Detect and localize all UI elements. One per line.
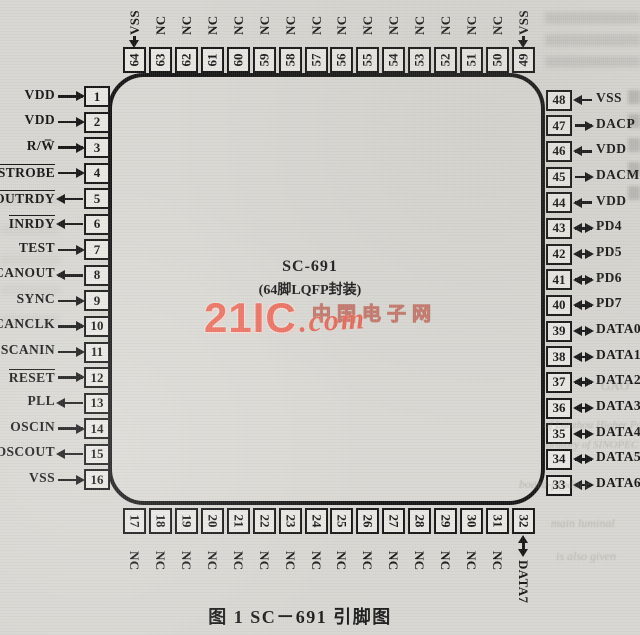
pin-number: 57 — [308, 54, 324, 67]
pin-label-28: NC — [413, 551, 426, 571]
pin-box-18: 18 — [149, 508, 172, 534]
pin-label-42: PD5 — [596, 245, 622, 260]
pin-box-23: 23 — [279, 508, 302, 534]
pin-arrow-44 — [575, 201, 592, 203]
pin-label-51: NC — [465, 15, 478, 35]
pin-box-1: 1 — [84, 86, 110, 107]
pin-label-61: NC — [206, 15, 219, 35]
pin-box-57: 57 — [305, 47, 328, 73]
pin-label-21: NC — [232, 551, 245, 571]
pin-label-text: NC — [205, 15, 220, 35]
pin-label-text: NC — [257, 551, 272, 571]
pin-label-57: NC — [310, 15, 323, 35]
pin-label-text: NC — [283, 15, 298, 35]
chip-package-label: (64脚LQFP封装) — [150, 279, 470, 299]
pin-number: 55 — [360, 54, 376, 67]
pin-label-text: DATA6 — [596, 475, 640, 490]
pin-number: 62 — [178, 54, 194, 67]
pin-arrow-8 — [58, 274, 83, 276]
pin-label-text: NC — [334, 551, 349, 571]
pin-label-63: NC — [154, 15, 167, 35]
pin-label-text: DATA3 — [596, 398, 640, 413]
pin-label-text: NC — [179, 551, 194, 571]
pin-box-43: 43 — [546, 218, 572, 239]
pin-box-34: 34 — [546, 449, 572, 470]
pin-arrow-35 — [575, 433, 592, 435]
pin-label-text: VSS — [596, 90, 622, 105]
pin-arrow-13 — [58, 402, 83, 404]
pin-box-40: 40 — [546, 295, 572, 316]
pin-number: 27 — [386, 515, 402, 528]
pin-label-text: VSS — [29, 470, 55, 485]
pin-arrow-41 — [575, 278, 592, 280]
pin-label-text: SCANOUT — [0, 265, 55, 280]
pin-label-4: STROBE — [0, 164, 55, 181]
pin-label-text: NC — [412, 15, 427, 35]
pin-number: 24 — [308, 515, 324, 528]
pin-box-4: 4 — [84, 163, 110, 184]
pin-arrow-4 — [58, 172, 83, 174]
pin-label-10: SCANCLK — [0, 317, 55, 332]
pin-label-45: DACM — [596, 168, 640, 183]
pin-box-10: 10 — [84, 316, 110, 337]
pin-label-text: VDD — [596, 193, 626, 208]
pin-label-text: NC — [438, 15, 453, 35]
pin-label-text: NC — [153, 15, 168, 35]
bleedthrough-fragment: of Lanzhou Higher Poly — [544, 419, 640, 431]
pin-box-29: 29 — [434, 508, 457, 534]
pin-label-36: DATA3 — [596, 399, 640, 414]
pin-arrow-40 — [575, 304, 592, 306]
pin-arrow-1 — [58, 95, 83, 97]
pin-label-text: NC — [412, 551, 427, 571]
pin-box-32: 32 — [512, 508, 535, 534]
pin-label-33: DATA6 — [596, 476, 640, 491]
pin-label-text: OUTRDY — [0, 190, 55, 206]
pin-number: 31 — [490, 515, 506, 528]
figure-caption: 图 1 SC－691 引脚图 — [140, 603, 460, 629]
pin-number: 26 — [360, 515, 376, 528]
pin-label-40: PD7 — [596, 296, 622, 311]
scanned-pinout-figure: SC-691 (64脚LQFP封装) 21IC 中国电子网 .com 1VDD2… — [0, 0, 640, 635]
pin-box-30: 30 — [460, 508, 483, 534]
pin-box-61: 61 — [201, 47, 224, 73]
pin-label-54: NC — [387, 15, 400, 35]
pin-number: 19 — [178, 515, 194, 528]
pin-label-text: DACM — [596, 167, 640, 182]
pin-number: 22 — [256, 515, 272, 528]
pin-number: 54 — [386, 54, 402, 67]
pin-number: 61 — [204, 54, 220, 67]
pin-label-text: NC — [360, 15, 375, 35]
pin-arrow-32 — [522, 542, 524, 550]
pin-label-text: NC — [283, 551, 298, 571]
chip-center-text: SC-691 (64脚LQFP封装) — [150, 258, 470, 299]
pin-number: 56 — [334, 54, 350, 67]
pin-number: 21 — [230, 515, 246, 528]
pin-label-25: NC — [335, 551, 348, 571]
pin-box-25: 25 — [330, 508, 353, 534]
watermark-com-suffix: .com — [298, 304, 367, 337]
pin-label-text: NC — [360, 551, 375, 571]
pin-box-44: 44 — [546, 192, 572, 213]
pin-box-12: 12 — [84, 367, 110, 388]
pin-box-48: 48 — [546, 90, 572, 111]
pin-box-50: 50 — [486, 47, 509, 73]
pin-number: 52 — [438, 54, 454, 67]
pin-number: 50 — [490, 54, 506, 67]
pin-label-text: VDD — [25, 112, 55, 127]
pin-label-text: STROBE — [0, 164, 55, 180]
pin-box-24: 24 — [305, 508, 328, 534]
pin-box-60: 60 — [227, 47, 250, 73]
pin-label-64: VSS — [128, 10, 141, 35]
bleedthrough-fragment: is also given — [556, 549, 616, 564]
pin-label-text: DATA0 — [596, 321, 640, 336]
pin-arrow-14 — [58, 427, 83, 429]
pin-label-text: NC — [179, 15, 194, 35]
pin-arrow-45 — [575, 176, 592, 178]
pin-label-text: DATA5 — [596, 449, 640, 464]
pin-arrow-47 — [575, 124, 592, 126]
pin-label-text: DACP — [596, 116, 635, 131]
pin-number: 64 — [127, 54, 143, 67]
pin-box-2: 2 — [84, 112, 110, 133]
pin-number: 18 — [152, 515, 168, 528]
pin-label-26: NC — [361, 551, 374, 571]
pin-label-31: NC — [491, 551, 504, 571]
pin-label-24: NC — [310, 551, 323, 571]
pin-box-54: 54 — [382, 47, 405, 73]
pin-label-1: VDD — [25, 88, 55, 103]
pin-label-text: NC — [464, 551, 479, 571]
pin-box-9: 9 — [84, 290, 110, 311]
pin-label-50: NC — [491, 15, 504, 35]
pin-box-16: 16 — [84, 469, 110, 490]
pin-label-text: NC — [257, 15, 272, 35]
pin-arrow-37 — [575, 381, 592, 383]
pin-label-text: DATA1 — [596, 347, 640, 362]
pin-label-22: NC — [258, 551, 271, 571]
pin-label-11: SCANIN — [1, 343, 55, 358]
pin-label-text: RESET — [9, 369, 55, 385]
pin-label-48: VSS — [596, 91, 622, 106]
pin-label-55: NC — [361, 15, 374, 35]
pin-label-text: PD6 — [596, 270, 622, 285]
pin-label-text: VDD — [25, 87, 55, 102]
bleedthrough-fragment: main luminal — [551, 516, 615, 531]
pin-box-22: 22 — [253, 508, 276, 534]
pin-label-39: DATA0 — [596, 322, 640, 337]
pin-box-41: 41 — [546, 269, 572, 290]
pin-box-19: 19 — [175, 508, 198, 534]
pin-arrow-11 — [58, 351, 83, 353]
pin-number: 51 — [464, 54, 480, 67]
bleedthrough-smudge — [545, 12, 640, 67]
pin-arrow-6 — [58, 223, 83, 225]
pin-box-42: 42 — [546, 244, 572, 265]
pin-number: 53 — [412, 54, 428, 67]
pin-label-52: NC — [439, 15, 452, 35]
pin-label-5: OUTRDY — [0, 190, 55, 207]
pin-label-text: NC — [386, 551, 401, 571]
pin-label-text: NC — [309, 15, 324, 35]
pin-box-58: 58 — [279, 47, 302, 73]
pin-label-text: NC — [127, 551, 142, 571]
pin-label-text: SCANCLK — [0, 316, 55, 331]
pin-label-41: PD6 — [596, 271, 622, 286]
pin-label-7: TEST — [19, 241, 55, 256]
pin-label-43: PD4 — [596, 219, 622, 234]
pin-arrow-15 — [58, 453, 83, 455]
pin-label-text: NC — [334, 15, 349, 35]
pin-arrow-16 — [58, 479, 83, 481]
pin-label-text: NC — [490, 15, 505, 35]
pin-number: 28 — [412, 515, 428, 528]
pin-label-text: TEST — [19, 240, 55, 255]
bleedthrough-smudge — [628, 90, 640, 210]
pin-label-9: SYNC — [17, 292, 55, 307]
pin-label-20: NC — [206, 551, 219, 571]
pin-label-49: VSS — [517, 10, 530, 35]
bleedthrough-fragment: GAO — [601, 378, 629, 394]
pin-label-text: DATA7 — [516, 560, 531, 603]
pin-box-11: 11 — [84, 342, 110, 363]
pin-box-28: 28 — [408, 508, 431, 534]
pin-box-53: 53 — [408, 47, 431, 73]
pin-label-38: DATA1 — [596, 348, 640, 363]
pin-box-45: 45 — [546, 167, 572, 188]
pin-box-64: 64 — [123, 47, 146, 73]
pin-label-text: NC — [231, 551, 246, 571]
pin-arrow-36 — [575, 407, 592, 409]
pin-box-49: 49 — [512, 47, 535, 73]
pin-box-27: 27 — [382, 508, 405, 534]
pin-label-3: R/W̅ — [27, 139, 55, 154]
pin-box-15: 15 — [84, 444, 110, 465]
pin-label-text: SYNC — [17, 291, 55, 306]
pin-label-text: VSS — [516, 10, 531, 35]
pin-number: 32 — [515, 515, 531, 528]
pin-label-text: OSCIN — [10, 419, 55, 434]
pin-box-31: 31 — [486, 508, 509, 534]
pin-label-16: VSS — [29, 471, 55, 486]
pin-label-46: VDD — [596, 142, 626, 157]
pin-label-44: VDD — [596, 194, 626, 209]
pin-box-5: 5 — [84, 188, 110, 209]
pin-label-19: NC — [180, 551, 193, 571]
bleedthrough-fragment: oratory of SINOPEC — [546, 439, 638, 451]
pin-box-6: 6 — [84, 214, 110, 235]
pin-box-37: 37 — [546, 372, 572, 393]
pin-label-text: VDD — [596, 141, 626, 156]
pin-number: 23 — [282, 515, 298, 528]
pin-label-text: R/W̅ — [27, 138, 55, 153]
pin-label-12: RESET — [9, 369, 55, 386]
bleedthrough-fragment: board-produce — [519, 477, 590, 492]
pin-label-text: INRDY — [9, 215, 55, 231]
pin-number: 60 — [230, 54, 246, 67]
pin-label-text: PD5 — [596, 244, 622, 259]
pin-box-26: 26 — [356, 508, 379, 534]
pin-box-14: 14 — [84, 418, 110, 439]
pin-box-63: 63 — [149, 47, 172, 73]
pin-label-30: NC — [465, 551, 478, 571]
pin-label-53: NC — [413, 15, 426, 35]
pin-label-17: NC — [128, 551, 141, 571]
pin-box-59: 59 — [253, 47, 276, 73]
pin-arrow-7 — [58, 249, 83, 251]
pin-number: 29 — [438, 515, 454, 528]
pin-number: 63 — [152, 54, 168, 67]
pin-box-51: 51 — [460, 47, 483, 73]
pin-box-56: 56 — [330, 47, 353, 73]
pin-arrow-64 — [133, 36, 135, 41]
pin-label-text: NC — [438, 551, 453, 571]
pin-label-text: NC — [386, 15, 401, 35]
pin-label-62: NC — [180, 15, 193, 35]
pin-number: 20 — [204, 515, 220, 528]
pin-arrow-43 — [575, 227, 592, 229]
pin-box-39: 39 — [546, 321, 572, 342]
pin-arrow-12 — [58, 376, 83, 378]
pin-label-23: NC — [284, 551, 297, 571]
pin-label-29: NC — [439, 551, 452, 571]
pin-number: 25 — [334, 515, 350, 528]
pin-label-text: VSS — [127, 10, 142, 35]
pin-number: 49 — [515, 54, 531, 67]
pin-arrow-42 — [575, 253, 592, 255]
pin-label-34: DATA5 — [596, 450, 640, 465]
pin-arrow-46 — [575, 150, 592, 152]
pin-label-27: NC — [387, 551, 400, 571]
pin-box-7: 7 — [84, 239, 110, 260]
pin-label-59: NC — [258, 15, 271, 35]
pin-label-text: PLL — [28, 393, 55, 408]
pin-label-47: DACP — [596, 117, 635, 132]
pin-label-18: NC — [154, 551, 167, 571]
pin-label-2: VDD — [25, 113, 55, 128]
pin-arrow-48 — [575, 99, 592, 101]
pin-arrow-9 — [58, 300, 83, 302]
pin-arrow-34 — [575, 458, 592, 460]
pin-arrow-3 — [58, 146, 83, 148]
pin-label-56: NC — [335, 15, 348, 35]
pin-box-52: 52 — [434, 47, 457, 73]
pin-arrow-38 — [575, 356, 592, 358]
pin-arrow-49 — [522, 36, 524, 41]
pin-number: 58 — [282, 54, 298, 67]
pin-box-62: 62 — [175, 47, 198, 73]
pin-label-text: NC — [309, 551, 324, 571]
pin-box-38: 38 — [546, 346, 572, 367]
pin-box-20: 20 — [201, 508, 224, 534]
pin-label-15: OSCOUT — [0, 445, 55, 460]
pin-box-3: 3 — [84, 137, 110, 158]
pin-number: 30 — [464, 515, 480, 528]
pin-arrow-2 — [58, 121, 83, 123]
pin-label-14: OSCIN — [10, 420, 55, 435]
pin-arrow-39 — [575, 330, 592, 332]
pin-label-text: OSCOUT — [0, 444, 55, 459]
pin-label-32: DATA7 — [517, 560, 530, 603]
pin-label-text: NC — [490, 551, 505, 571]
pin-box-46: 46 — [546, 141, 572, 162]
pin-label-text: NC — [464, 15, 479, 35]
pin-label-text: NC — [231, 15, 246, 35]
pin-box-17: 17 — [123, 508, 146, 534]
pin-arrow-10 — [58, 325, 83, 327]
pin-box-13: 13 — [84, 393, 110, 414]
pin-label-text: PD4 — [596, 218, 622, 233]
pin-label-8: SCANOUT — [0, 266, 55, 281]
pin-box-36: 36 — [546, 398, 572, 419]
pin-box-47: 47 — [546, 115, 572, 136]
chip-name: SC-691 — [150, 258, 470, 276]
pin-arrow-5 — [58, 198, 83, 200]
pin-label-text: PD7 — [596, 295, 622, 310]
pin-label-58: NC — [284, 15, 297, 35]
watermark-21ic-logo: 21IC — [204, 297, 297, 339]
pin-box-55: 55 — [356, 47, 379, 73]
pin-label-60: NC — [232, 15, 245, 35]
pin-label-13: PLL — [28, 394, 55, 409]
pin-box-8: 8 — [84, 265, 110, 286]
pin-box-21: 21 — [227, 508, 250, 534]
pin-number: 59 — [256, 54, 272, 67]
pin-number: 17 — [127, 515, 143, 528]
pin-label-6: INRDY — [9, 215, 55, 232]
pin-label-text: SCANIN — [1, 342, 55, 357]
pin-label-text: NC — [153, 551, 168, 571]
pin-label-text: NC — [205, 551, 220, 571]
